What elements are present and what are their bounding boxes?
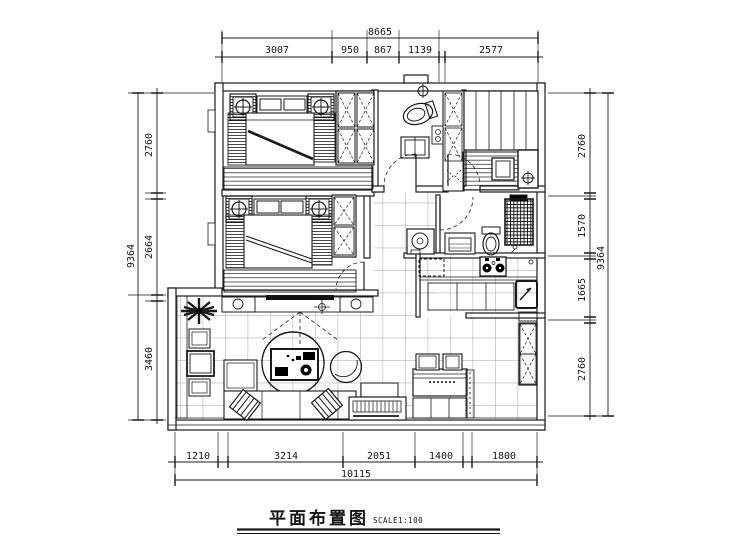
bed-side-runner	[312, 215, 332, 265]
coffee-table	[271, 349, 318, 380]
floor-plan-drawing: 8665 3007 950 867 1139 2577 1210 3214 20…	[0, 0, 740, 560]
drawing-scale: SCALE1:100	[373, 516, 423, 525]
dim-left-seg-0: 2760	[144, 133, 155, 157]
toilet-icon	[401, 99, 439, 128]
door-swing	[440, 197, 473, 230]
bed-side-runner	[228, 113, 246, 165]
faucet-icon	[511, 245, 517, 253]
wardrobe-icon	[332, 195, 356, 257]
bed-headboard-pillows	[254, 199, 306, 215]
linen-closet-icon	[443, 91, 464, 191]
dim-bottom-seg-0: 1210	[186, 451, 210, 462]
double-bed	[244, 215, 312, 268]
bedroom1	[224, 91, 374, 189]
dim-bottom-seg-3: 1400	[429, 451, 453, 462]
dim-right-seg-2: 1665	[577, 278, 588, 302]
dining-chair	[416, 354, 439, 370]
dim-left-total: 9364	[126, 244, 137, 268]
double-bed	[246, 113, 314, 165]
corner-shelf-icon	[432, 126, 444, 144]
dim-top-seg-0: 3007	[265, 45, 289, 56]
laundry-sink-icon	[445, 233, 475, 254]
bed-headboard-pillows	[257, 96, 307, 113]
entry-closet-icon	[519, 312, 537, 385]
toilet-icon	[482, 227, 500, 255]
dim-bottom-seg-1: 3214	[274, 451, 298, 462]
dim-right-seg-3: 2760	[577, 357, 588, 381]
dim-top-seg-3: 1139	[408, 45, 432, 56]
dining-bench	[413, 398, 467, 418]
drawing-title: 平面布置图	[269, 508, 369, 529]
tv-icon	[266, 295, 334, 300]
dining-table	[413, 369, 467, 396]
shower-mat-icon	[505, 195, 533, 245]
dim-top-seg-1: 950	[341, 45, 359, 56]
wardrobe-icon	[464, 91, 538, 150]
dim-left-seg-2: 3460	[144, 347, 155, 371]
dim-bottom-seg-4: 1800	[492, 451, 516, 462]
dim-top-seg-2: 867	[374, 45, 392, 56]
bedroom2	[224, 195, 364, 292]
door-swing	[384, 154, 416, 186]
floor-plan-page: 8665 3007 950 867 1139 2577 1210 3214 20…	[0, 0, 740, 560]
window-sills	[208, 110, 215, 245]
bathroom1	[384, 84, 464, 191]
dim-top-seg-4: 2577	[479, 45, 503, 56]
dim-left-seg-1: 2664	[144, 235, 155, 259]
dim-bottom-seg-2: 2051	[367, 451, 391, 462]
title-block: 平面布置图 SCALE1:100	[237, 508, 500, 534]
dim-bottom-total: 10115	[341, 469, 371, 480]
dim-right-seg-1: 1570	[577, 214, 588, 238]
washbasin-icon	[401, 137, 429, 158]
nightstand-lamp-icon	[518, 150, 538, 188]
wardrobe-icon	[336, 91, 374, 165]
dining-chair	[443, 354, 462, 370]
dim-right-total: 9364	[596, 246, 607, 270]
bed-side-runner	[314, 113, 335, 162]
bed-side-runner	[226, 215, 244, 268]
dim-right-seg-0: 2760	[577, 134, 588, 158]
dim-top-total: 8665	[368, 27, 392, 38]
bed-tray-table	[492, 158, 514, 180]
bench-rug	[224, 167, 373, 189]
washing-machine-icon	[407, 229, 434, 254]
gas-stove-icon	[480, 257, 506, 276]
